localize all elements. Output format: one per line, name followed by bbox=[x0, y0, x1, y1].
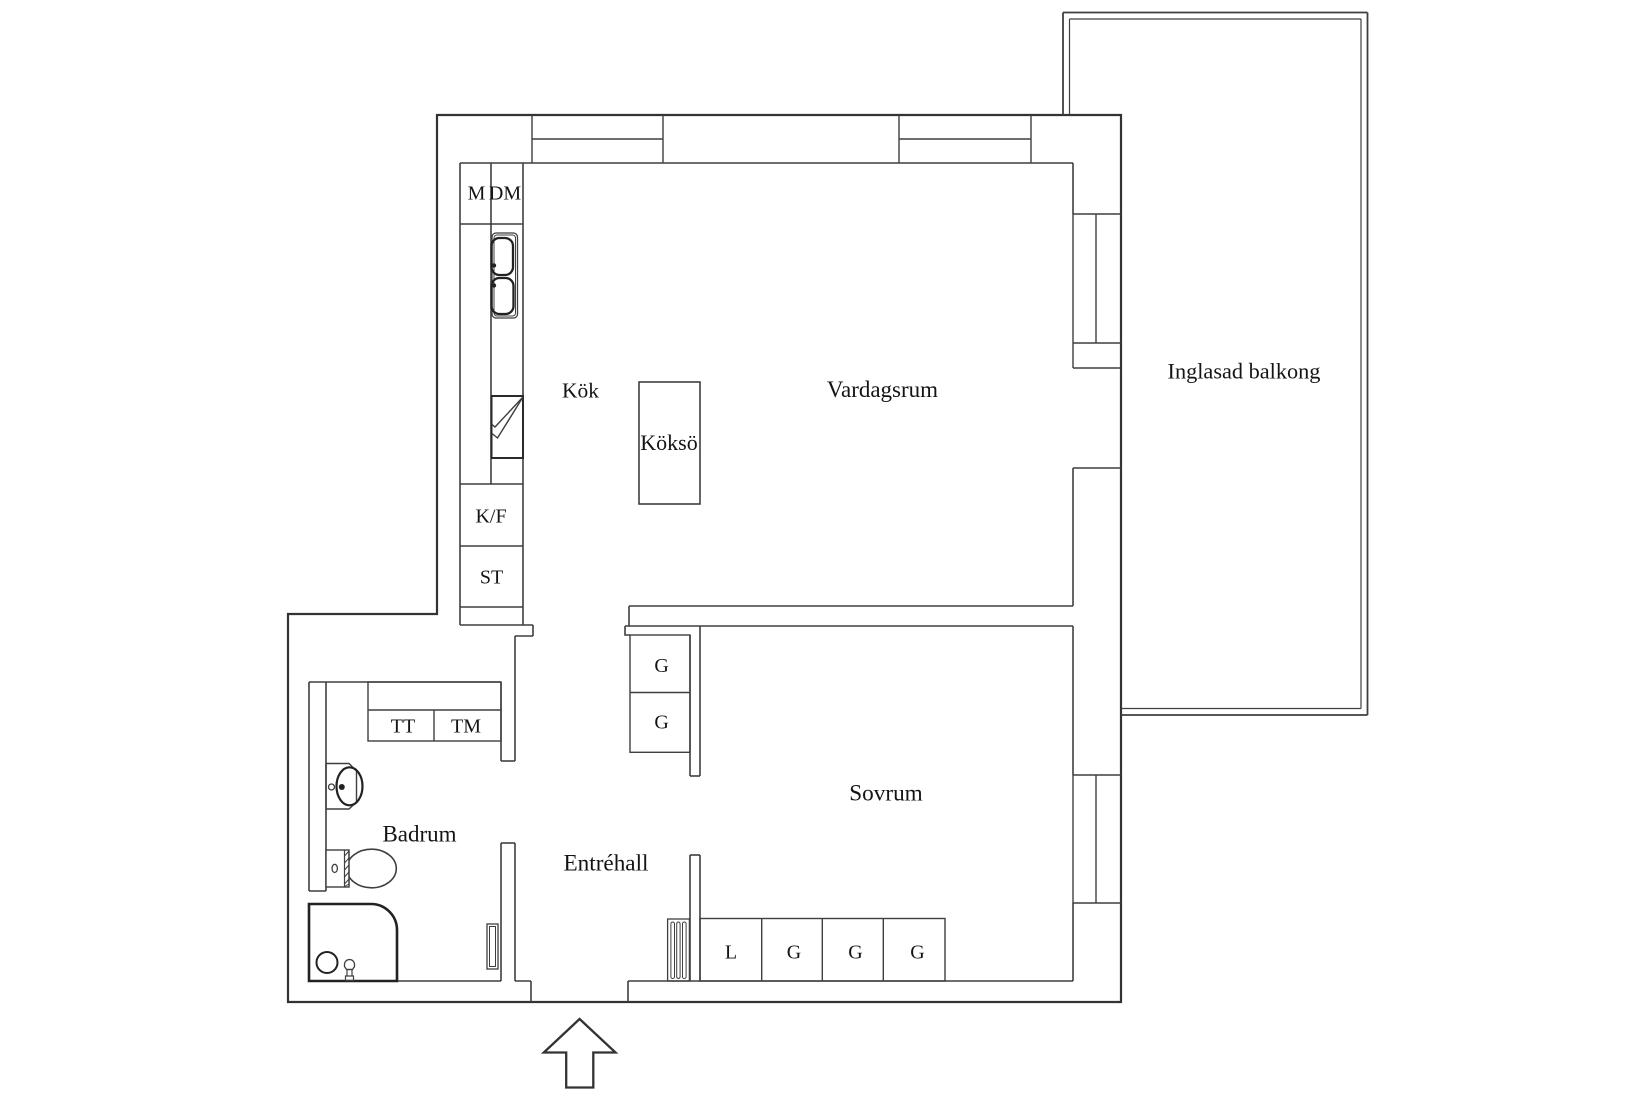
svg-text:L: L bbox=[725, 942, 737, 964]
svg-text:G: G bbox=[654, 712, 668, 734]
svg-text:ST: ST bbox=[480, 567, 503, 589]
svg-text:Inglasad balkong: Inglasad balkong bbox=[1168, 359, 1321, 384]
svg-text:G: G bbox=[654, 655, 668, 677]
svg-text:M: M bbox=[468, 183, 486, 205]
svg-text:Badrum: Badrum bbox=[382, 821, 456, 846]
svg-text:Vardagsrum: Vardagsrum bbox=[827, 377, 938, 402]
svg-text:G: G bbox=[910, 942, 924, 964]
svg-text:G: G bbox=[787, 942, 801, 964]
svg-text:Kök: Kök bbox=[562, 379, 599, 403]
svg-text:Sovrum: Sovrum bbox=[849, 781, 922, 807]
svg-text:Köksö: Köksö bbox=[640, 430, 697, 455]
svg-text:G: G bbox=[848, 942, 862, 964]
svg-text:TT: TT bbox=[391, 716, 415, 738]
svg-text:K/F: K/F bbox=[475, 506, 506, 528]
svg-text:TM: TM bbox=[451, 716, 481, 738]
svg-text:DM: DM bbox=[489, 183, 521, 205]
svg-text:Entréhall: Entréhall bbox=[564, 851, 649, 877]
